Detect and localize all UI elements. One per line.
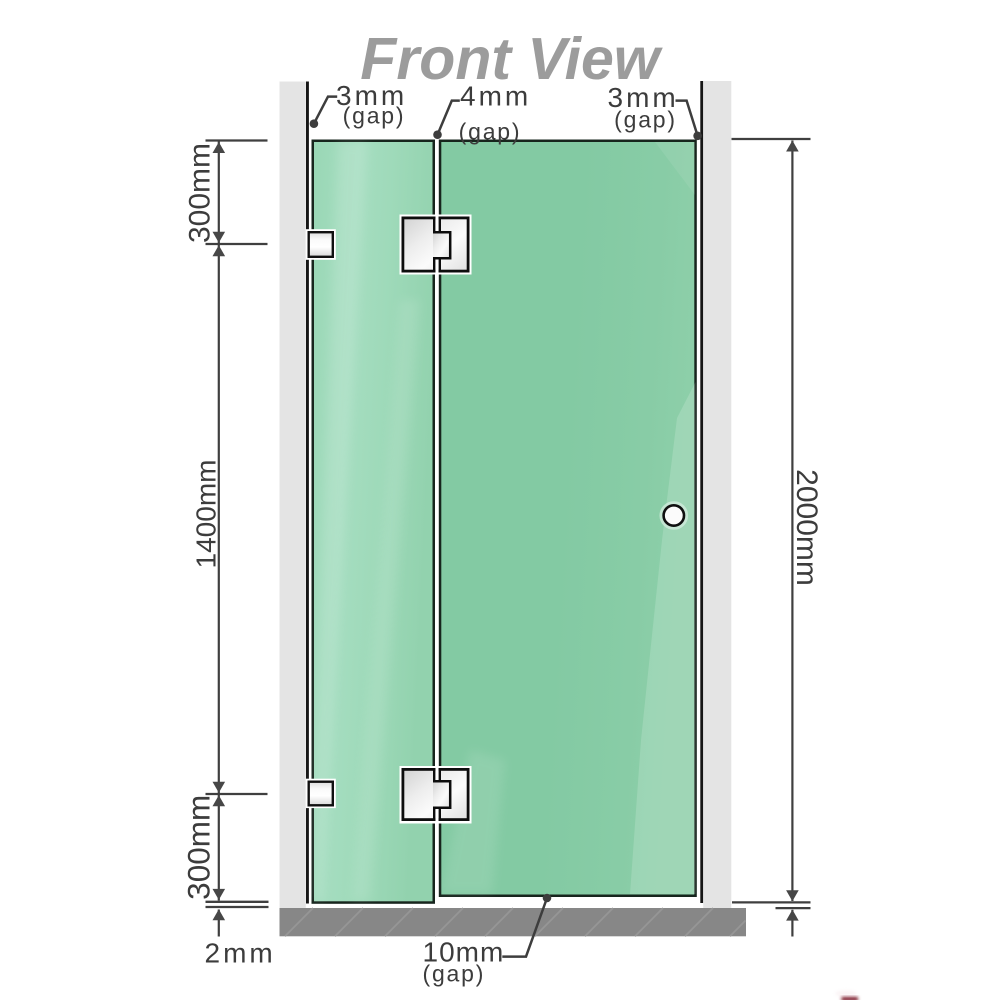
svg-text:2000mm: 2000mm [790,469,823,586]
svg-text:4mm: 4mm [460,81,531,112]
svg-text:1400mm: 1400mm [191,460,222,569]
svg-text:(gap): (gap) [343,103,406,129]
svg-text:2mm: 2mm [205,938,276,969]
svg-text:300mm: 300mm [184,143,217,243]
svg-text:(gap): (gap) [423,961,486,987]
svg-text:(gap): (gap) [614,107,677,133]
svg-text:300mm: 300mm [181,795,217,900]
svg-text:(gap): (gap) [459,118,522,144]
